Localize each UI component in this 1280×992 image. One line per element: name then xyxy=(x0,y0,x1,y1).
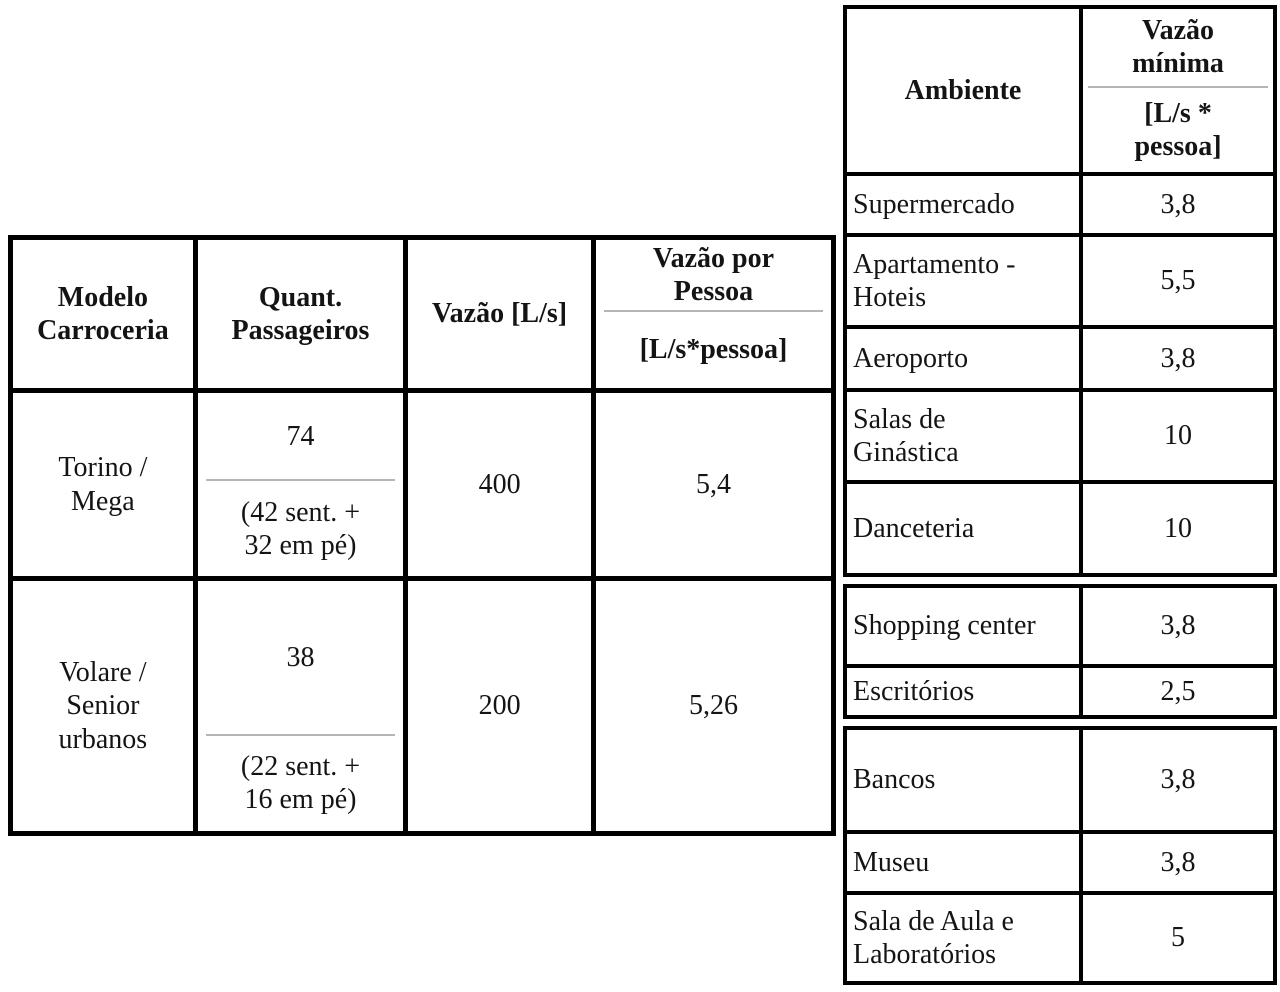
cell-ambiente: Apartamento - Hoteis xyxy=(847,237,1083,325)
cell-text: 5,26 xyxy=(689,689,738,722)
cell-text: 5,4 xyxy=(696,468,731,501)
header-label: Ambiente xyxy=(905,74,1022,107)
cell-modelo: Volare / Senior urbanos xyxy=(13,581,198,831)
table-row-museu: Museu 3,8 xyxy=(843,830,1277,895)
cell-vazao-minima: 2,5 xyxy=(1083,668,1273,715)
table-row-sala-de-aula-laboratorios: Sala de Aula e Laboratórios 5 xyxy=(843,891,1277,985)
cell-ambiente: Sala de Aula e Laboratórios xyxy=(847,895,1083,981)
cell-text: (22 sent. + 16 em pé) xyxy=(241,750,360,816)
cell-passageiros: 74 (42 sent. + 32 em pé) xyxy=(198,393,408,576)
cell-vazao-por-pessoa: 5,4 xyxy=(596,393,831,576)
header-cell-vazao: Vazão [L/s] xyxy=(408,240,596,388)
cell-vazao: 200 xyxy=(408,581,596,831)
header-label: Vazão mínima xyxy=(1132,14,1224,80)
cell-vazao-minima: 3,8 xyxy=(1083,834,1273,891)
cell-text: 3,8 xyxy=(1161,342,1196,375)
cell-ambiente: Supermercado xyxy=(847,176,1083,233)
cell-text: 74 xyxy=(286,420,314,453)
header-label: Quant. Passageiros xyxy=(232,281,370,347)
table-row-supermercado: Supermercado 3,8 xyxy=(843,172,1277,237)
cell-text: Shopping center xyxy=(853,609,1036,642)
header-label-unit: [L/s * pessoa] xyxy=(1083,88,1273,172)
cell-text: Aeroporto xyxy=(853,342,968,375)
cell-vazao-minima: 3,8 xyxy=(1083,730,1273,830)
cell-text: Bancos xyxy=(853,763,935,796)
cell-passageiros-detalhe: (22 sent. + 16 em pé) xyxy=(198,736,403,831)
cell-vazao-minima: 3,8 xyxy=(1083,176,1273,233)
cell-text: (42 sent. + 32 em pé) xyxy=(241,496,360,562)
table-row-aeroporto: Aeroporto 3,8 xyxy=(843,325,1277,392)
header-label-top: Vazão por Pessoa xyxy=(596,240,831,310)
cell-text: 5,5 xyxy=(1161,264,1196,297)
right-table-header-row: Ambiente Vazão mínima [L/s * pessoa] xyxy=(843,5,1277,176)
cell-ambiente: Escritórios xyxy=(847,668,1083,715)
cell-text: 3,8 xyxy=(1161,188,1196,221)
cell-ambiente: Salas de Ginástica xyxy=(847,392,1083,480)
header-label-top: Vazão mínima xyxy=(1083,9,1273,86)
header-cell-quant-passageiros: Quant. Passageiros xyxy=(198,240,408,388)
cell-text: Volare / Senior urbanos xyxy=(59,656,148,755)
cell-ambiente: Bancos xyxy=(847,730,1083,830)
cell-ambiente: Shopping center xyxy=(847,588,1083,664)
cell-passageiros-total: 74 xyxy=(198,393,403,479)
cell-text: 3,8 xyxy=(1161,763,1196,796)
cell-text: Torino / Mega xyxy=(58,451,147,517)
right-table: Ambiente Vazão mínima [L/s * pessoa] Sup… xyxy=(843,5,1277,985)
header-cell-modelo-carroceria: Modelo Carroceria xyxy=(13,240,198,388)
header-label: Vazão [L/s] xyxy=(432,297,567,330)
table-row-shopping-center: Shopping center 3,8 xyxy=(843,584,1277,668)
cell-passageiros: 38 (22 sent. + 16 em pé) xyxy=(198,581,408,831)
cell-text: 10 xyxy=(1164,512,1192,545)
cell-vazao-minima: 10 xyxy=(1083,392,1273,480)
table-row-torino-mega: Torino / Mega 74 (42 sent. + 32 em pé) 4… xyxy=(13,393,831,581)
cell-vazao-minima: 3,8 xyxy=(1083,329,1273,388)
cell-text: 400 xyxy=(479,468,521,501)
header-cell-ambiente: Ambiente xyxy=(847,9,1083,172)
cell-text: 10 xyxy=(1164,419,1192,452)
header-cell-vazao-por-pessoa: Vazão por Pessoa [L/s*pessoa] xyxy=(596,240,831,388)
header-label-unit: [L/s*pessoa] xyxy=(596,312,831,388)
table-row-volare-senior: Volare / Senior urbanos 38 (22 sent. + 1… xyxy=(13,581,831,831)
cell-text: Sala de Aula e Laboratórios xyxy=(853,905,1014,971)
cell-vazao-minima: 5 xyxy=(1083,895,1273,981)
table-row-apartamento-hoteis: Apartamento - Hoteis 5,5 xyxy=(843,233,1277,329)
cell-vazao-minima: 3,8 xyxy=(1083,588,1273,664)
table-row-escritorios: Escritórios 2,5 xyxy=(843,664,1277,719)
cell-passageiros-total: 38 xyxy=(198,581,403,734)
header-label: [L/s * pessoa] xyxy=(1134,97,1221,163)
cell-text: Museu xyxy=(853,846,929,879)
header-label: Vazão por Pessoa xyxy=(653,242,774,308)
left-table: Modelo Carroceria Quant. Passageiros Vaz… xyxy=(8,235,836,836)
cell-text: Salas de Ginástica xyxy=(853,403,959,469)
cell-ambiente: Danceteria xyxy=(847,484,1083,573)
cell-text: Escritórios xyxy=(853,675,974,708)
cell-text: Supermercado xyxy=(853,188,1015,221)
cell-text: 38 xyxy=(286,641,314,674)
table-row-salas-de-ginastica: Salas de Ginástica 10 xyxy=(843,388,1277,484)
cell-vazao-minima: 5,5 xyxy=(1083,237,1273,325)
cell-ambiente: Museu xyxy=(847,834,1083,891)
cell-vazao-por-pessoa: 5,26 xyxy=(596,581,831,831)
table-row-bancos: Bancos 3,8 xyxy=(843,726,1277,834)
cell-vazao-minima: 10 xyxy=(1083,484,1273,573)
cell-text: Danceteria xyxy=(853,512,974,545)
cell-text: 3,8 xyxy=(1161,846,1196,879)
header-label: [L/s*pessoa] xyxy=(640,333,788,366)
header-cell-vazao-minima: Vazão mínima [L/s * pessoa] xyxy=(1083,9,1273,172)
cell-text: 5 xyxy=(1171,921,1185,954)
cell-passageiros-detalhe: (42 sent. + 32 em pé) xyxy=(198,481,403,576)
cell-modelo: Torino / Mega xyxy=(13,393,198,576)
left-table-header-row: Modelo Carroceria Quant. Passageiros Vaz… xyxy=(13,240,831,393)
table-row-danceteria: Danceteria 10 xyxy=(843,480,1277,577)
cell-text: 2,5 xyxy=(1161,675,1196,708)
cell-ambiente: Aeroporto xyxy=(847,329,1083,388)
header-label: Modelo Carroceria xyxy=(37,281,169,347)
cell-text: 200 xyxy=(479,689,521,722)
cell-text: Apartamento - Hoteis xyxy=(853,248,1016,314)
cell-text: 3,8 xyxy=(1161,609,1196,642)
cell-vazao: 400 xyxy=(408,393,596,576)
